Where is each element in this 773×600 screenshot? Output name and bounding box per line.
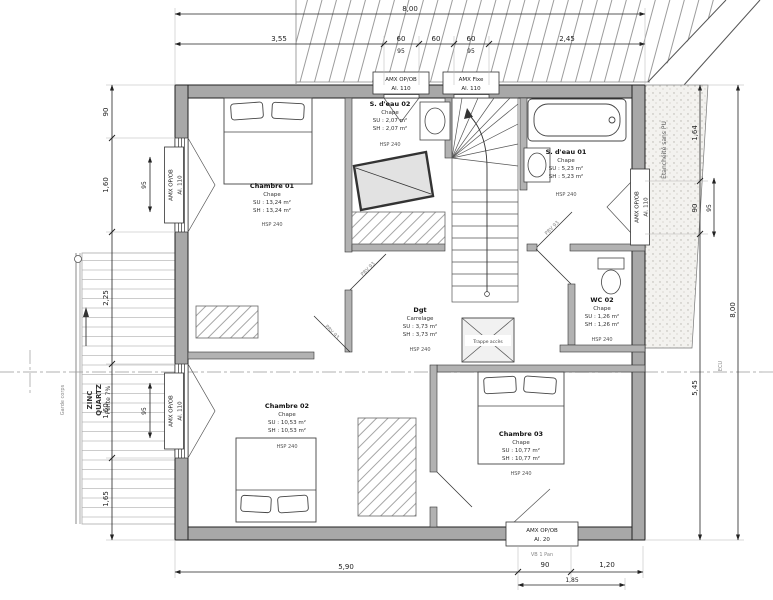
dim-left-c: 2,25 xyxy=(102,290,110,306)
room-hsp: HSP 240 xyxy=(409,347,430,353)
room-su: SU : 5,23 m² xyxy=(549,165,583,172)
door-tag-3: PBV 93 xyxy=(544,220,561,237)
dim-bottom-a: 5,90 xyxy=(338,563,354,571)
window-allege: Al. 110 xyxy=(178,401,184,421)
window-allege: Al. 20 xyxy=(534,537,550,543)
dim-top-d2: 95 xyxy=(467,48,475,55)
door-tag-2: PBV 93 xyxy=(323,324,340,341)
bed-chambre01 xyxy=(224,98,312,184)
room-sh: SH : 1,26 m² xyxy=(585,321,620,328)
guardrail-annotation: Garde corps xyxy=(60,384,66,415)
balcony-drain-symbol xyxy=(75,256,82,263)
window-allege: Al. 110 xyxy=(644,197,650,217)
balcony-left xyxy=(75,253,176,524)
room-finish: Chape xyxy=(557,158,575,164)
window-label-right: AMX OP/OB Al. 110 xyxy=(631,169,650,245)
dim-top-b: 60 xyxy=(397,35,406,43)
door-tag-1: PBV 93 xyxy=(360,261,377,278)
window-model: AMX OP/OB xyxy=(169,395,175,427)
dim-top-c: 60 xyxy=(432,35,441,43)
window-model: AMX Fixe xyxy=(459,77,484,83)
dim-top-e: 2,45 xyxy=(559,35,575,43)
floor-plan-drawing: PBV 93 PBV 93 PBV 93 Trappe accès xyxy=(0,0,773,600)
room-label-wc02: WC 02 Chape SU : 1,26 m² SH : 1,26 m² HS… xyxy=(585,296,620,343)
room-finish: Chape xyxy=(593,306,611,312)
bathtub xyxy=(528,99,626,141)
room-su: SU : 1,26 m² xyxy=(585,313,619,320)
room-sh: SH : 10,77 m² xyxy=(502,455,540,462)
room-su: SU : 3,73 m² xyxy=(403,323,437,330)
room-finish: Chape xyxy=(512,440,530,446)
room-name: S. d'eau 01 xyxy=(546,148,587,156)
terrace-right xyxy=(645,85,708,348)
window-label-top-right: AMX Fixe Al. 110 xyxy=(443,72,499,94)
room-sh: SH : 5,23 m² xyxy=(549,173,584,180)
room-name: Chambre 01 xyxy=(250,182,295,190)
room-label-chambre03: Chambre 03 Chape SU : 10,77 m² SH : 10,7… xyxy=(499,430,543,477)
toilet-wc02 xyxy=(598,258,624,294)
dim-bottom-c: 1,20 xyxy=(599,561,615,569)
dim-right-c: 5,45 xyxy=(691,380,699,396)
dim-left-a: 90 xyxy=(102,108,110,117)
room-su: SU : 10,77 m² xyxy=(502,447,540,454)
trappe-label: Trappe accès xyxy=(472,338,503,345)
room-hsp: HSP 240 xyxy=(276,444,297,450)
closet-chambre01 xyxy=(196,306,258,338)
room-hsp: HSP 240 xyxy=(510,471,531,477)
zinc-line1: ZINC xyxy=(86,391,94,410)
window-model: AMX OP/OB xyxy=(635,191,641,223)
window-note: VB 1 Pan xyxy=(531,552,553,558)
room-hsp: HSP 240 xyxy=(591,337,612,343)
dim-right-overall: 8,00 xyxy=(729,302,737,318)
room-su: SU : 13,24 m² xyxy=(253,199,291,206)
dim-right-a: 1,64 xyxy=(691,125,699,141)
dim-left-d: 1,60 xyxy=(102,403,110,419)
window-label-bottom: AMX OP/OB Al. 20 VB 1 Pan xyxy=(506,522,578,558)
window-allege: Al. 110 xyxy=(178,175,184,195)
room-hsp: HSP 240 xyxy=(261,222,282,228)
room-name: Chambre 02 xyxy=(265,402,309,410)
door-wc02 xyxy=(536,249,571,284)
room-finish: Chape xyxy=(381,110,399,116)
room-label-sdeau02: S. d'eau 02 Chape SU : 2,07 m² SH : 2,07… xyxy=(370,100,411,148)
dim-right-b: 90 xyxy=(691,204,699,213)
room-sh: SH : 13,24 m² xyxy=(253,207,291,214)
closet-chambre02 xyxy=(358,418,416,516)
window-model: AMX OP/OB xyxy=(526,528,558,534)
room-su: SU : 2,07 m² xyxy=(373,117,407,124)
room-finish: Carrelage xyxy=(407,316,434,322)
room-finish: Chape xyxy=(263,192,281,198)
room-name: Dgt xyxy=(413,306,426,314)
dim-top-d: 60 xyxy=(467,35,476,43)
dim-bottom-b2: 1,85 xyxy=(565,577,579,584)
room-name: WC 02 xyxy=(590,296,613,304)
dim-left-b: 1,60 xyxy=(102,177,110,193)
room-sh: SH : 10,53 m² xyxy=(268,427,306,434)
dim-left-d2: 95 xyxy=(141,407,148,415)
window-label-left-lower: AMX OP/OB Al. 110 xyxy=(165,373,184,449)
room-name: Chambre 03 xyxy=(499,430,543,438)
staircase xyxy=(452,98,518,302)
room-sh: SH : 3,73 m² xyxy=(403,331,438,338)
axis-tag: ECU xyxy=(718,361,724,372)
bed-chambre02 xyxy=(236,438,316,522)
floor-plan-page: PBV 93 PBV 93 PBV 93 Trappe accès xyxy=(0,0,773,600)
window-label-left-upper: AMX OP/OB Al. 110 xyxy=(165,147,184,223)
terrace-annotation: Étanchéité sans PU xyxy=(660,121,668,179)
room-sh: SH : 2,07 m² xyxy=(373,125,408,132)
ceiling-hatch: Trappe accès xyxy=(462,318,514,362)
shower-sdeau02 xyxy=(354,152,433,210)
washbasin-sdeau02 xyxy=(420,102,450,140)
window-allege: Al. 110 xyxy=(461,86,481,92)
dim-top-b2: 95 xyxy=(397,48,405,55)
window-model: AMX OP/OB xyxy=(169,169,175,201)
dim-left-b2: 95 xyxy=(141,181,148,189)
room-finish: Chape xyxy=(278,412,296,418)
closet-sdeau02 xyxy=(352,212,445,244)
dim-right-b2: 95 xyxy=(706,204,713,212)
closets xyxy=(196,212,445,516)
dim-top-a: 3,55 xyxy=(271,35,287,43)
room-label-sdeau01: S. d'eau 01 Chape SU : 5,23 m² SH : 5,23… xyxy=(546,148,587,198)
room-name: S. d'eau 02 xyxy=(370,100,411,108)
door-chambre03 xyxy=(437,472,472,507)
room-hsp: HSP 240 xyxy=(379,142,400,148)
dim-top-overall: 8,00 xyxy=(402,5,418,13)
room-label-dgt: Dgt Carrelage SU : 3,73 m² SH : 3,73 m² … xyxy=(403,306,438,353)
dim-left-e: 1,65 xyxy=(102,491,110,507)
dim-bottom-b: 90 xyxy=(541,561,550,569)
window-model: AMX OP/OB xyxy=(385,77,417,83)
window-label-top-left: AMX OP/OB Al. 110 xyxy=(373,72,429,94)
window-allege: Al. 110 xyxy=(391,86,411,92)
room-su: SU : 10,53 m² xyxy=(268,419,306,426)
room-hsp: HSP 240 xyxy=(555,192,576,198)
room-label-chambre01: Chambre 01 Chape SU : 13,24 m² SH : 13,2… xyxy=(250,182,295,228)
